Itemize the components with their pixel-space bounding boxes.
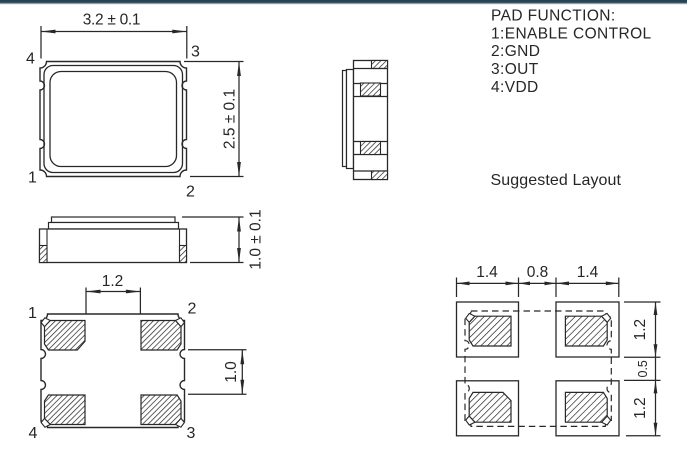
svg-text:4:VDD: 4:VDD — [491, 79, 539, 96]
svg-text:0.5: 0.5 — [636, 360, 650, 377]
svg-text:0.8: 0.8 — [527, 264, 549, 281]
svg-text:PAD FUNCTION:: PAD FUNCTION: — [491, 8, 616, 25]
svg-text:1: 1 — [28, 170, 37, 187]
svg-text:1:ENABLE CONTROL: 1:ENABLE CONTROL — [491, 25, 652, 42]
svg-text:2:GND: 2:GND — [491, 43, 540, 60]
svg-text:1.0 ± 0.1: 1.0 ± 0.1 — [248, 209, 265, 269]
svg-text:1.4: 1.4 — [577, 264, 599, 281]
svg-text:1.2: 1.2 — [632, 319, 649, 341]
svg-text:3: 3 — [187, 425, 196, 442]
svg-text:Suggested Layout: Suggested Layout — [491, 172, 622, 189]
svg-text:3: 3 — [191, 44, 200, 61]
svg-text:3:OUT: 3:OUT — [491, 61, 539, 78]
svg-text:1.4: 1.4 — [476, 264, 498, 281]
svg-text:1.2: 1.2 — [632, 397, 649, 419]
svg-text:1.0: 1.0 — [223, 361, 240, 383]
svg-text:2.5 ± 0.1: 2.5 ± 0.1 — [222, 89, 239, 149]
svg-text:3.2 ± 0.1: 3.2 ± 0.1 — [83, 12, 141, 29]
svg-text:2: 2 — [188, 301, 197, 318]
svg-text:2: 2 — [186, 184, 195, 201]
svg-text:4: 4 — [29, 425, 38, 442]
svg-text:4: 4 — [26, 51, 35, 68]
svg-text:1.2: 1.2 — [102, 273, 124, 290]
svg-text:1: 1 — [28, 305, 37, 322]
